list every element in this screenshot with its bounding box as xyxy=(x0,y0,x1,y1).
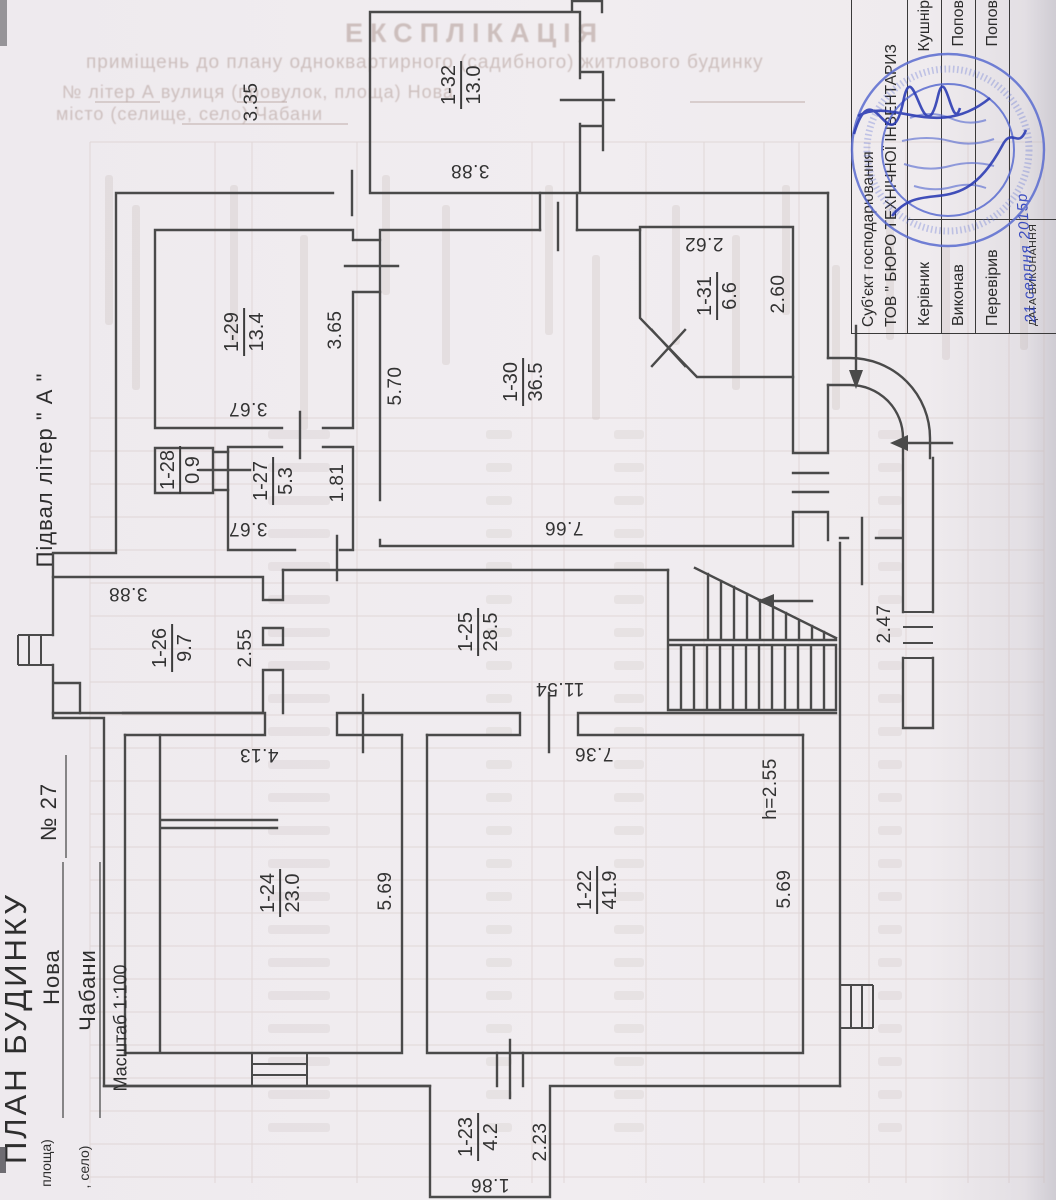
dimension-label: 11.54 xyxy=(536,677,585,699)
scan-edge-mark-bottom xyxy=(0,1147,6,1173)
room-label: 1-3213.0 xyxy=(439,61,485,109)
right-walls xyxy=(840,458,933,1086)
room-1-29 xyxy=(155,230,398,458)
street-caption: площа) xyxy=(38,1139,54,1187)
window-right xyxy=(903,612,933,658)
room-number: 1-24 xyxy=(258,869,281,917)
room-number: 1-28 xyxy=(158,446,181,494)
room-number: 1-22 xyxy=(575,866,598,914)
street-name: Нова xyxy=(39,949,65,1005)
scanned-document-page: ЕКСПЛІКАЦІЯ приміщень до плану однокварт… xyxy=(0,0,1056,1200)
room-area: 23.0 xyxy=(282,874,304,913)
room-label: 1-2241.9 xyxy=(575,866,621,914)
dimension-label: 4.13 xyxy=(240,743,279,765)
dimension-label: 5.69 xyxy=(774,870,796,909)
room-number: 1-31 xyxy=(695,272,718,320)
scan-edge-mark-top xyxy=(0,0,7,46)
arrow-left-head xyxy=(890,435,908,451)
dimension-label: 2.23 xyxy=(530,1123,552,1162)
dimension-label: 7.66 xyxy=(545,516,584,538)
outer-walls xyxy=(53,1,828,1086)
scale-label: Масштаб 1:100 xyxy=(111,964,132,1091)
settlement-caption: , село) xyxy=(76,1146,92,1189)
room-label: 1-3036.5 xyxy=(501,358,547,406)
dimension-label: 2.62 xyxy=(685,232,724,254)
caption-underlines xyxy=(63,755,100,1118)
dimension-label: 2.60 xyxy=(768,275,790,314)
room-number: 1-26 xyxy=(150,624,173,672)
dimension-label: 1.81 xyxy=(327,464,349,503)
window-left xyxy=(18,635,53,665)
room-number: 1-32 xyxy=(439,61,462,109)
dimension-label: 3.88 xyxy=(109,582,148,604)
stairs xyxy=(668,568,836,710)
room-area: 0.9 xyxy=(182,456,204,484)
room-area: 5.3 xyxy=(275,467,297,495)
window-bottom xyxy=(252,1053,307,1086)
dimension-label: 5.69 xyxy=(375,872,397,911)
room-number: 1-25 xyxy=(456,608,479,656)
corridor-walls xyxy=(123,570,836,752)
room-label: 1-275.3 xyxy=(251,457,297,505)
dimension-label: 7.36 xyxy=(575,742,614,764)
dimension-label: 3.65 xyxy=(325,311,347,350)
room-area: 36.5 xyxy=(525,363,547,402)
room-area: 9.7 xyxy=(174,634,196,662)
dimension-label: 3.88 xyxy=(451,159,490,181)
room-number: 1-30 xyxy=(501,358,524,406)
room-number: 1-27 xyxy=(251,457,274,505)
dimension-label: 2.55 xyxy=(235,629,257,668)
settlement-name: Чабани xyxy=(75,949,101,1031)
room-label: 1-316.6 xyxy=(695,272,741,320)
dimension-label: 3.35 xyxy=(241,83,263,122)
dimension-label: 5.70 xyxy=(385,367,407,406)
room-label: 1-269.7 xyxy=(150,624,196,672)
window-right-lower xyxy=(840,985,873,1028)
room-number: 1-23 xyxy=(456,1113,479,1161)
room-label: 1-280.9 xyxy=(158,446,204,494)
dimension-label: 3.67 xyxy=(229,517,268,539)
room-label: 1-2423.0 xyxy=(258,869,304,917)
dimension-label: 2.47 xyxy=(874,605,896,644)
dimension-label: 3.67 xyxy=(229,397,268,419)
room-label: 1-2913.4 xyxy=(222,308,268,356)
house-number: № 27 xyxy=(36,783,62,841)
room-label: 1-2528.5 xyxy=(456,608,502,656)
room-area: 6.6 xyxy=(719,282,741,310)
room-area: 13.0 xyxy=(463,66,485,105)
room-area: 4.2 xyxy=(480,1123,502,1151)
round-stamp xyxy=(840,38,1056,268)
hall-left-wall xyxy=(793,193,828,546)
dimension-label: 1.86 xyxy=(471,1173,510,1195)
room-area: 13.4 xyxy=(246,313,268,352)
signature-scribble xyxy=(854,87,1026,216)
plan-title: ПЛАН БУДИНКУ xyxy=(0,892,34,1164)
plan-subtitle: Підвал літер " А " xyxy=(32,373,58,568)
dimension-label: h=2.55 xyxy=(760,758,782,820)
room-area: 28.5 xyxy=(480,613,502,652)
room-number: 1-29 xyxy=(222,308,245,356)
room-area: 41.9 xyxy=(599,871,621,910)
room-label: 1-234.2 xyxy=(456,1113,502,1161)
